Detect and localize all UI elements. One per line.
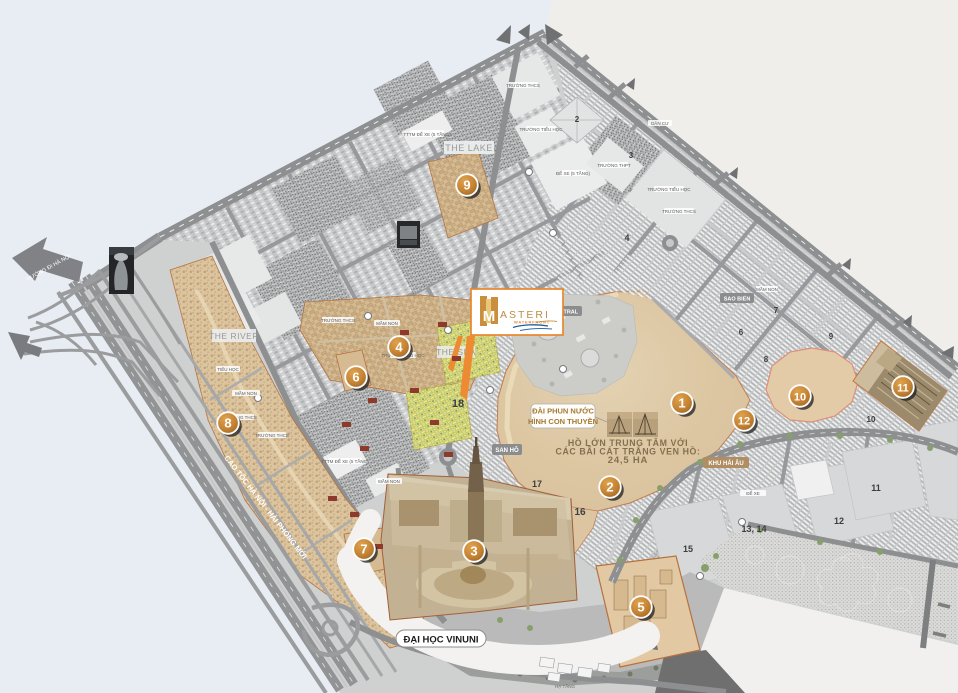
svg-text:2: 2 [606,480,613,495]
svg-text:DÂN CƯ: DÂN CƯ [651,120,669,126]
svg-text:TIẾU HỌC: TIẾU HỌC [217,366,239,372]
svg-text:4: 4 [395,340,403,355]
svg-text:9: 9 [463,178,470,193]
svg-text:TTTM ĐỂ XE (5 TẦNG): TTTM ĐỂ XE (5 TẦNG) [403,131,451,137]
svg-text:TRƯỜNG TIỂU HỌC: TRƯỜNG TIỂU HỌC [647,186,691,192]
svg-text:TRƯỜNG THPT: TRƯỜNG THPT [597,162,631,168]
svg-text:12: 12 [834,516,844,526]
svg-text:HẠ TẦNG: HẠ TẦNG [555,683,575,689]
svg-text:MẦM NON: MẦM NON [378,478,400,484]
svg-text:13, 14: 13, 14 [741,524,766,534]
svg-text:MẦM NON: MẦM NON [376,320,398,326]
svg-text:THE LAKE: THE LAKE [445,143,493,153]
svg-text:ĐỂ XE (5 TẦNG): ĐỂ XE (5 TẦNG) [556,170,590,176]
svg-text:6: 6 [352,370,359,385]
svg-text:11: 11 [871,483,881,493]
svg-text:KHU HẢI ÂU: KHU HẢI ÂU [708,460,743,467]
svg-text:SAO BIỂN: SAO BIỂN [724,296,751,303]
svg-text:8: 8 [764,355,769,364]
svg-text:10: 10 [867,415,876,424]
svg-text:6: 6 [739,328,744,337]
svg-text:11: 11 [897,383,909,395]
svg-text:SAN HÔ: SAN HÔ [495,446,519,454]
svg-text:M: M [483,308,496,325]
svg-text:3: 3 [629,151,634,160]
svg-text:7: 7 [360,542,367,557]
svg-text:ĐẠI HỌC VINUNI: ĐẠI HỌC VINUNI [404,635,479,646]
svg-text:1: 1 [678,396,685,411]
svg-text:8: 8 [224,416,231,431]
svg-text:24,5 HA: 24,5 HA [608,455,648,466]
svg-text:WATERFRONT: WATERFRONT [514,320,550,325]
svg-text:ĐỂ XE: ĐỂ XE [746,490,760,496]
svg-text:3: 3 [470,544,477,559]
svg-text:THE RIVER: THE RIVER [209,331,259,341]
svg-text:TRƯỜNG THCS: TRƯỜNG THCS [255,432,289,438]
svg-text:MẦM NON: MẦM NON [235,390,257,396]
svg-text:15: 15 [683,544,693,554]
svg-text:12: 12 [738,416,750,428]
svg-text:4: 4 [624,233,629,243]
svg-text:TRƯỜNG THCS: TRƯỜNG THCS [321,317,355,323]
svg-text:5: 5 [637,600,644,615]
svg-text:10: 10 [794,392,806,404]
svg-text:TTTM ĐỂ XE (5 TẦNG): TTTM ĐỂ XE (5 TẦNG) [321,458,369,464]
svg-text:9: 9 [829,332,834,341]
svg-text:TRƯỜNG THCS: TRƯỜNG THCS [506,82,540,88]
svg-text:2: 2 [575,115,580,124]
svg-text:17: 17 [532,479,542,489]
svg-text:TRƯỜNG TIỂU HỌC: TRƯỜNG TIỂU HỌC [519,126,563,132]
svg-text:HÌNH CON THUYỀN: HÌNH CON THUYỀN [528,416,598,426]
svg-text:16: 16 [574,507,586,518]
svg-text:7: 7 [774,306,779,315]
svg-text:18: 18 [452,398,464,410]
svg-text:TRƯỜNG THCS: TRƯỜNG THCS [662,208,696,214]
svg-text:ĐÀI PHUN NƯỚC: ĐÀI PHUN NƯỚC [532,407,594,416]
svg-text:MẦM NON: MẦM NON [756,286,778,292]
